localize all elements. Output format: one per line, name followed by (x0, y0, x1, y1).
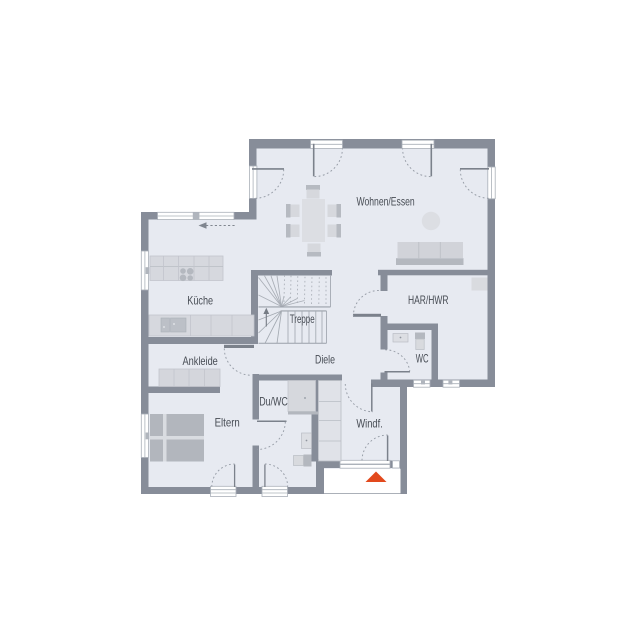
svg-text:HAR/HWR: HAR/HWR (408, 293, 449, 307)
svg-text:Küche: Küche (187, 294, 213, 308)
svg-text:Treppe: Treppe (290, 314, 315, 326)
svg-text:Diele: Diele (315, 353, 335, 367)
svg-text:Du/WC: Du/WC (259, 395, 288, 409)
svg-text:Eltern: Eltern (215, 415, 240, 429)
svg-text:Wohnen/Essen: Wohnen/Essen (357, 194, 415, 208)
svg-text:WC: WC (416, 352, 429, 366)
svg-text:Windf.: Windf. (356, 417, 382, 431)
svg-text:Ankleide: Ankleide (183, 354, 219, 368)
